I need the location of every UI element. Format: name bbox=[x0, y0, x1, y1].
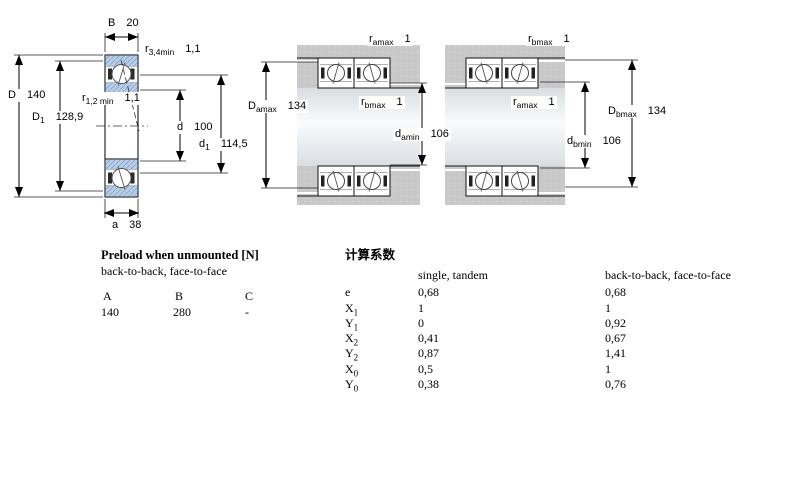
dim-label-D1: D1128,9 bbox=[30, 111, 85, 124]
dimension-lines bbox=[585, 60, 632, 187]
factor-value-single-tandem: 1 bbox=[418, 301, 424, 316]
factor-value-single-tandem: 0,68 bbox=[418, 285, 439, 300]
dim-label-Dbmax: Dbmax134 bbox=[606, 105, 668, 118]
dim-label-dbmin: dbmin106 bbox=[565, 135, 623, 148]
dim-label-d: d100 bbox=[175, 121, 214, 134]
bearing-pair-bottom bbox=[318, 166, 390, 196]
factor-value-single-tandem: 0,87 bbox=[418, 346, 439, 361]
factor-value-single-tandem: 0 bbox=[418, 316, 424, 331]
factor-label: Y2 bbox=[345, 346, 358, 361]
factor-value-back-to-back: 0,76 bbox=[605, 377, 626, 392]
dim-label-B: B20 bbox=[106, 17, 141, 30]
bearing-pair-top bbox=[466, 58, 538, 88]
factors-col2-header: back-to-back, face-to-face bbox=[605, 268, 731, 282]
factor-value-back-to-back: 1 bbox=[605, 301, 611, 316]
factor-value-back-to-back: 1,41 bbox=[605, 346, 626, 361]
factor-value-back-to-back: 0,68 bbox=[605, 285, 626, 300]
factor-label: Y1 bbox=[345, 316, 358, 331]
factor-label: X2 bbox=[345, 331, 358, 346]
dim-label-d1: d1114,5 bbox=[197, 138, 250, 151]
factor-value-back-to-back: 1 bbox=[605, 362, 611, 377]
dim-label-ramax-mid: ramax1 bbox=[511, 96, 557, 109]
bearing-pair-bottom bbox=[466, 166, 538, 196]
bearing-section-bottom bbox=[105, 159, 138, 197]
factor-value-single-tandem: 0,41 bbox=[418, 331, 439, 346]
factors-title: 计算系数 bbox=[345, 248, 395, 262]
preload-subtitle: back-to-back, face-to-face bbox=[101, 264, 227, 278]
dim-label-a: a38 bbox=[110, 219, 143, 232]
mounting-diagram-b bbox=[440, 30, 665, 215]
preload-col-B: B bbox=[175, 289, 183, 303]
dim-label-r34: r3,4min1,1 bbox=[143, 43, 202, 56]
preload-value-A: 140 bbox=[101, 305, 119, 319]
mounting-diagram-a bbox=[245, 30, 460, 215]
dim-label-ramax-top: ramax1 bbox=[367, 33, 413, 46]
factors-col1-header: single, tandem bbox=[418, 268, 488, 282]
factor-value-single-tandem: 0,5 bbox=[418, 362, 433, 377]
dim-label-rbmax-mid: rbmax1 bbox=[359, 96, 405, 109]
preload-col-A: A bbox=[103, 289, 112, 303]
preload-value-C: - bbox=[245, 305, 249, 319]
factor-label: Y0 bbox=[345, 377, 358, 392]
dim-label-rbmax-top: rbmax1 bbox=[526, 33, 572, 46]
preload-value-B: 280 bbox=[173, 305, 191, 319]
factor-value-single-tandem: 0,38 bbox=[418, 377, 439, 392]
dim-label-D: D140 bbox=[6, 89, 47, 102]
factor-label: e bbox=[345, 285, 350, 300]
preload-title: Preload when unmounted [N] bbox=[101, 248, 259, 262]
bearing-datasheet-page: B20 r3,4min1,1 D140 D1128,9 r1,2 min1,1 … bbox=[0, 0, 800, 500]
factor-value-back-to-back: 0,92 bbox=[605, 316, 626, 331]
preload-col-C: C bbox=[245, 289, 253, 303]
factor-label: X0 bbox=[345, 362, 358, 377]
dim-label-damin: damin106 bbox=[393, 128, 451, 141]
dim-label-r12: r1,2 min1,1 bbox=[80, 92, 142, 105]
factor-value-back-to-back: 0,67 bbox=[605, 331, 626, 346]
factor-label: X1 bbox=[345, 301, 358, 316]
bearing-pair-top bbox=[318, 58, 390, 88]
dim-label-Damax: Damax134 bbox=[246, 100, 308, 113]
